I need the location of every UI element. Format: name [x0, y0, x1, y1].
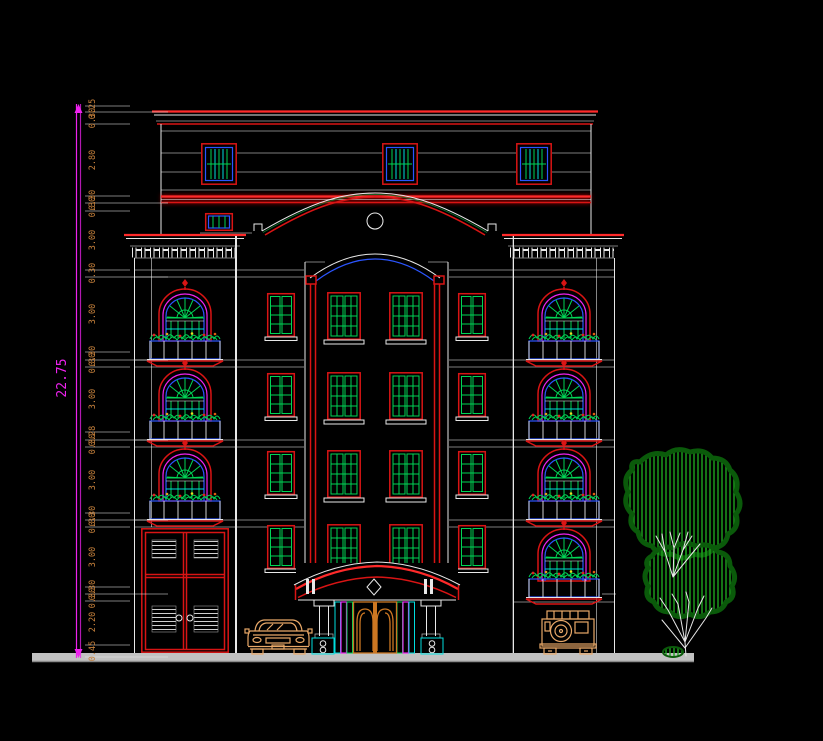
central-window: [324, 450, 364, 502]
dim-label: 3.00: [88, 470, 98, 490]
narrow-window: [456, 525, 488, 573]
arched-window: [159, 359, 211, 421]
stair-window: [200, 213, 252, 233]
dim-label: 3.00: [88, 230, 98, 250]
side-mirror: [245, 629, 249, 633]
overall-height-label: 22.75: [55, 358, 70, 397]
right-tower: [514, 236, 617, 653]
central-window: [324, 372, 364, 424]
left-tower: [135, 236, 236, 653]
dim-label: 2.20: [88, 612, 98, 632]
top-window-left: [201, 143, 237, 185]
sedan-car: [245, 620, 312, 654]
dim-label: 0.30: [88, 588, 98, 608]
top-window-center: [382, 143, 418, 185]
dentil-row: [132, 248, 236, 258]
dentil-row: [510, 248, 614, 258]
dim-labels: 0.250.302.800.300.303.000.303.000.300.30…: [88, 99, 98, 661]
right-tower-cornice: [502, 235, 624, 258]
dim-label: 0.45: [88, 641, 98, 661]
dim-label: 3.00: [88, 389, 98, 409]
top-window-right: [516, 143, 552, 185]
tree-base-shrub: [663, 647, 683, 657]
arched-window: [538, 359, 590, 421]
narrow-window: [456, 373, 488, 421]
narrow-window: [265, 451, 297, 499]
arched-window: [159, 439, 211, 501]
elevation-drawing: 0.250.302.800.300.303.000.303.000.300.30…: [0, 0, 823, 741]
entrance-door: [335, 602, 415, 653]
arched-window: [159, 279, 211, 341]
central-window: [386, 292, 426, 344]
side-mirror: [308, 629, 312, 633]
dim-label: 2.80: [88, 150, 98, 170]
dim-label: 3.00: [88, 304, 98, 324]
narrow-window: [265, 293, 297, 341]
arched-window: [538, 439, 590, 501]
left-tower-cornice: [124, 235, 246, 258]
top-floor: [152, 112, 598, 237]
circle-ornament: [367, 213, 383, 229]
dim-label: 3.00: [88, 547, 98, 567]
narrow-window: [456, 451, 488, 499]
suv-car: [540, 611, 596, 654]
central-window: [386, 450, 426, 502]
entrance: [294, 562, 460, 654]
narrow-window: [265, 525, 297, 573]
entry-arch: [305, 254, 448, 600]
dim-label: 0.30: [88, 434, 98, 454]
arched-window: [538, 279, 590, 341]
cad-elevation-canvas[interactable]: 0.250.302.800.300.303.000.303.000.300.30…: [0, 0, 823, 741]
tree-canopy-lower: [645, 543, 735, 616]
dim-arrow-top: [75, 104, 83, 113]
dim-label: 0.30: [88, 197, 98, 217]
garage-door: [141, 528, 229, 653]
central-window: [324, 292, 364, 344]
narrow-window: [265, 373, 297, 421]
tree: [626, 450, 740, 657]
dim-label: 0.30: [88, 513, 98, 533]
entrance-canopy: [294, 562, 460, 600]
dim-label: 0.30: [88, 108, 98, 128]
spare-tire: [551, 621, 572, 642]
dim-label: 0.30: [88, 263, 98, 283]
narrow-window: [456, 293, 488, 341]
dim-label: 0.30: [88, 353, 98, 373]
central-window: [386, 372, 426, 424]
